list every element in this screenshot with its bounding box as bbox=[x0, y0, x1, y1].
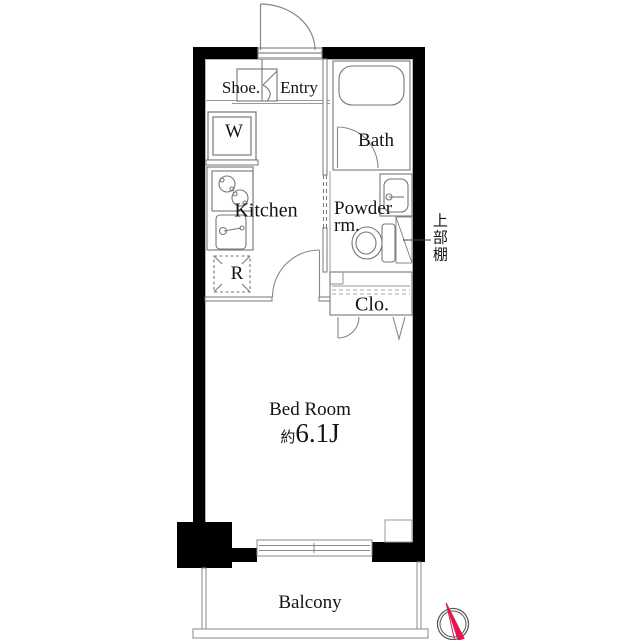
label-closet: Clo. bbox=[355, 295, 389, 316]
label-washer: W bbox=[225, 122, 243, 142]
balcony-window bbox=[257, 540, 372, 556]
partition-wall bbox=[323, 59, 330, 272]
bedroom-door bbox=[205, 250, 330, 301]
label-bedroom-size-value: 6.1J bbox=[295, 418, 339, 448]
label-shoe-closet: Shoe. bbox=[222, 79, 260, 97]
entry-door bbox=[258, 4, 322, 58]
floorplan-linework bbox=[0, 0, 640, 640]
label-bedroom-size-prefix: 約 bbox=[280, 430, 295, 446]
label-fridge: R bbox=[231, 264, 244, 284]
compass-icon bbox=[431, 598, 474, 640]
label-entry: Entry bbox=[280, 79, 318, 97]
label-kitchen: Kitchen bbox=[234, 201, 297, 222]
label-bedroom-size: 約6.1J bbox=[280, 419, 339, 447]
bath-room bbox=[333, 61, 410, 170]
label-bath: Bath bbox=[358, 131, 394, 151]
floorplan: Shoe. Entry W Bath Kitchen Powder rm. 上部… bbox=[0, 0, 640, 640]
label-powder-room: Powder rm. bbox=[334, 200, 392, 234]
label-balcony: Balcony bbox=[278, 593, 341, 613]
label-powder-line2: rm. bbox=[334, 217, 392, 234]
wall-notch bbox=[385, 520, 412, 542]
label-upper-shelf: 上部棚 bbox=[430, 213, 446, 264]
